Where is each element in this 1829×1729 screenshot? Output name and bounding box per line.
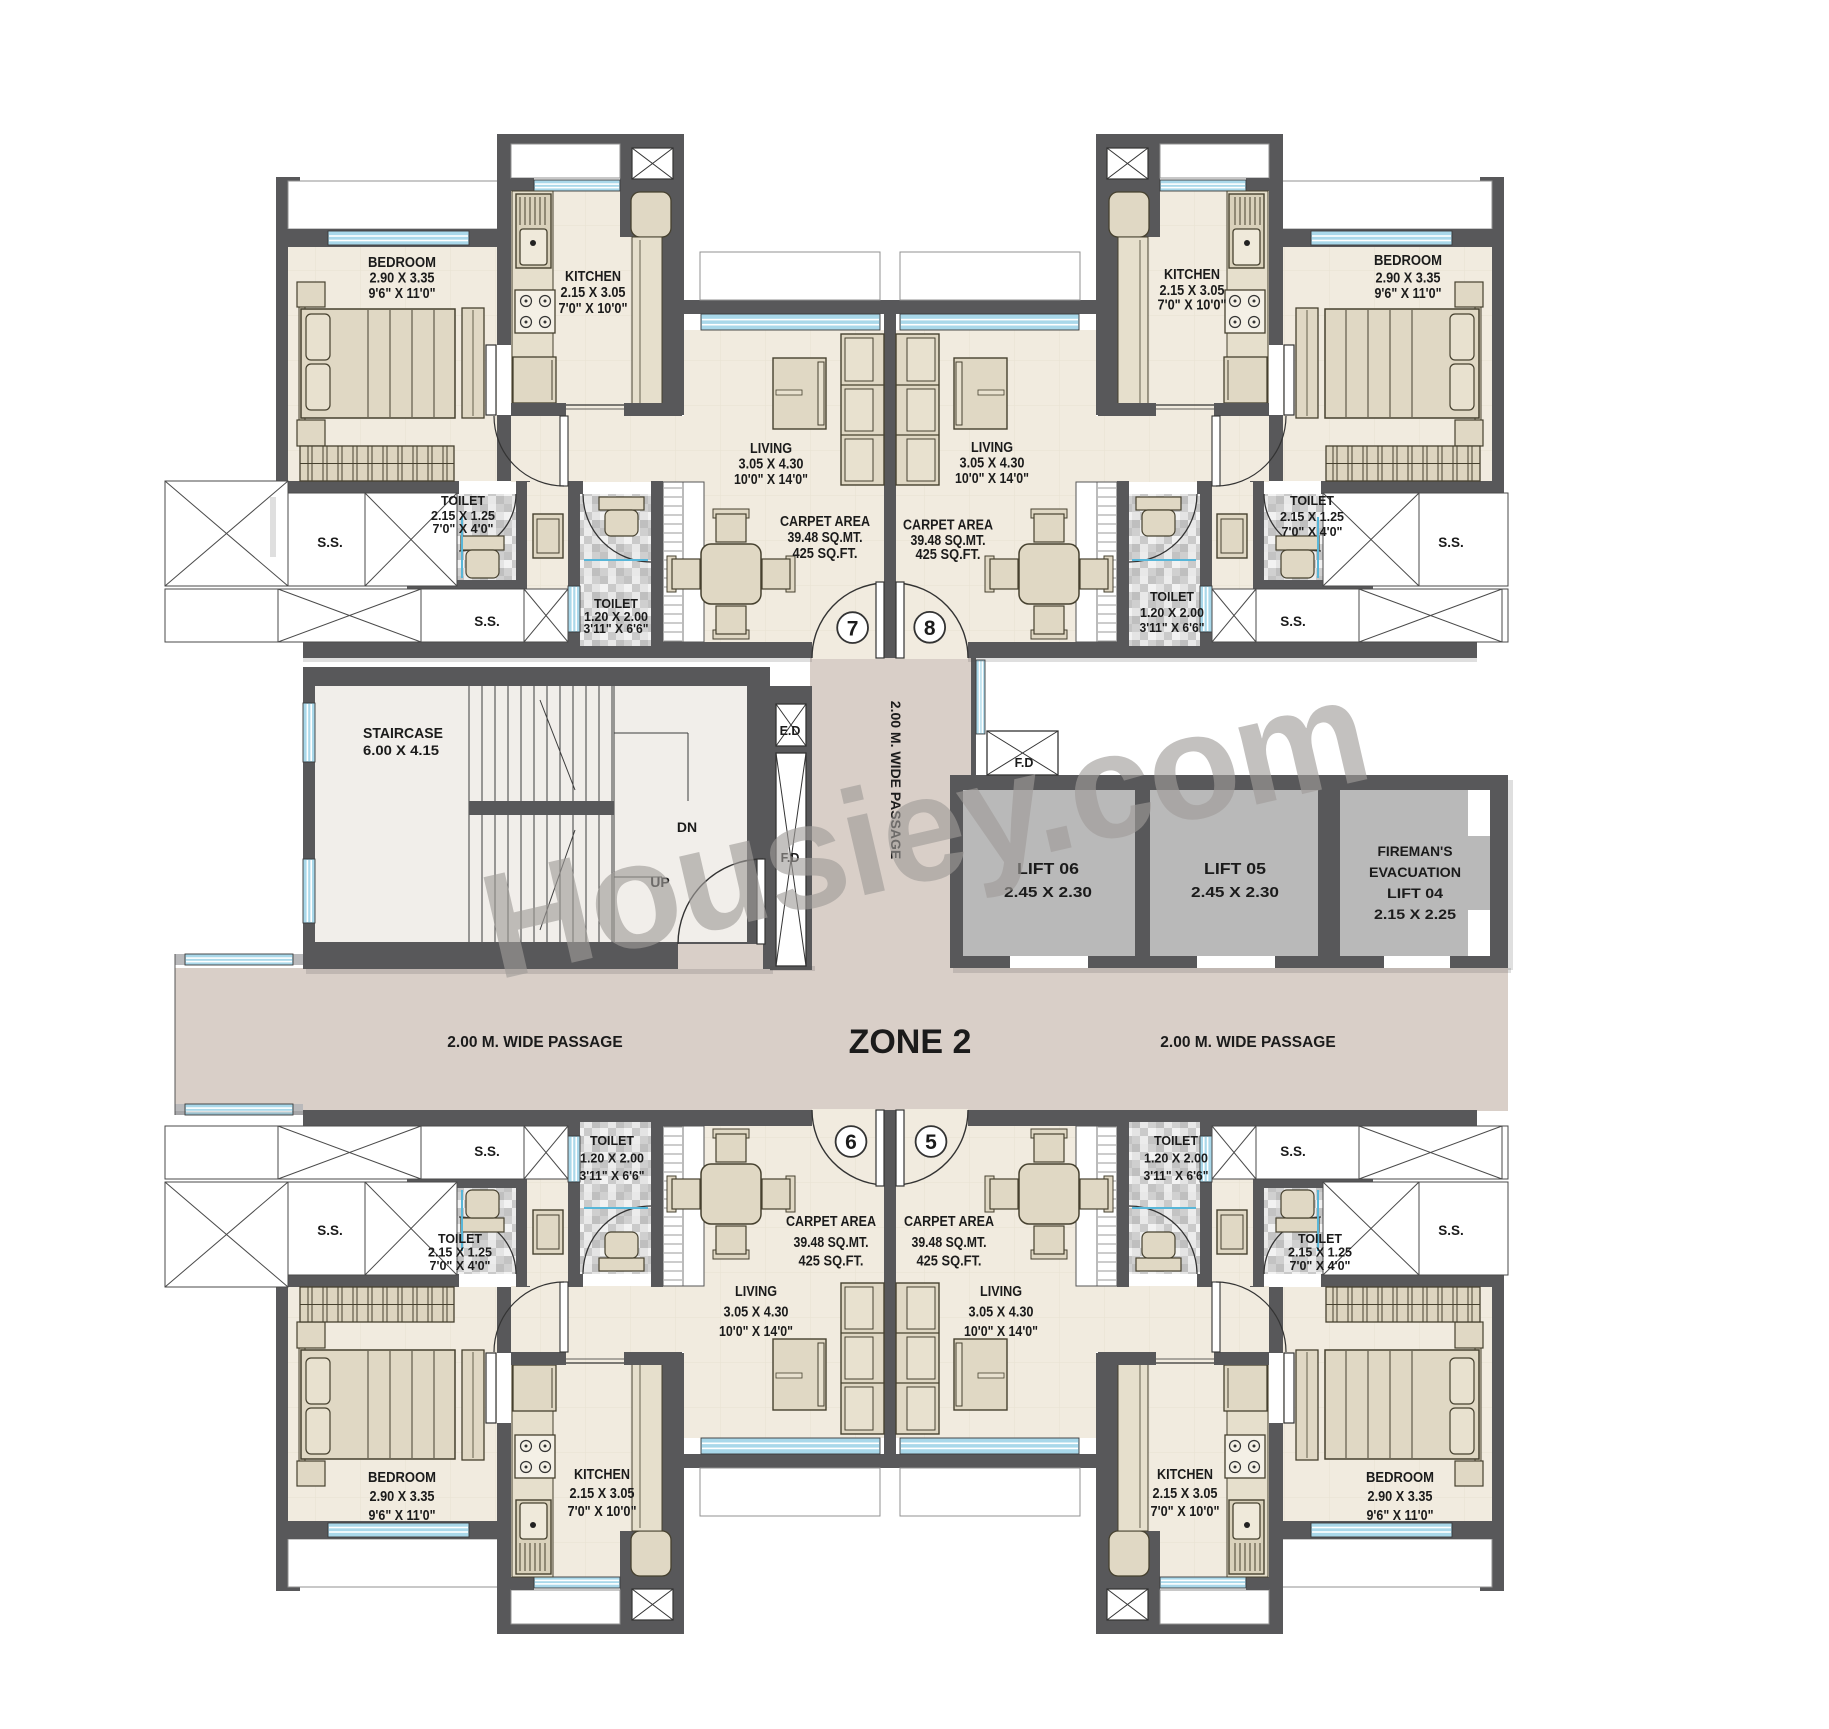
svg-text:2.15 X 3.05: 2.15 X 3.05 (1153, 1486, 1218, 1502)
svg-text:425 SQ.FT.: 425 SQ.FT. (799, 1254, 864, 1270)
svg-text:2.90 X 3.35: 2.90 X 3.35 (370, 1489, 435, 1505)
svg-text:2.45 X 2.30: 2.45 X 2.30 (1191, 884, 1279, 901)
svg-text:2.00 M. WIDE PASSAGE: 2.00 M. WIDE PASSAGE (1160, 1034, 1335, 1051)
svg-text:LIVING: LIVING (750, 441, 792, 457)
svg-text:425 SQ.FT.: 425 SQ.FT. (916, 547, 981, 563)
svg-text:10'0" X 14'0": 10'0" X 14'0" (734, 472, 808, 488)
svg-text:2.15 X 2.25: 2.15 X 2.25 (1374, 906, 1456, 922)
svg-text:6.00 X 4.15: 6.00 X 4.15 (363, 742, 439, 758)
svg-text:2.90 X 3.35: 2.90 X 3.35 (1368, 1489, 1433, 1505)
svg-text:3.05 X 4.30: 3.05 X 4.30 (739, 457, 804, 473)
svg-text:1.20 X 2.00: 1.20 X 2.00 (1140, 605, 1204, 620)
svg-text:E.D: E.D (780, 724, 801, 738)
svg-text:S.S.: S.S. (1438, 535, 1464, 550)
svg-text:2.00 M. WIDE PASSAGE: 2.00 M. WIDE PASSAGE (447, 1034, 622, 1051)
svg-text:FIREMAN'S: FIREMAN'S (1378, 843, 1453, 859)
svg-text:CARPET AREA: CARPET AREA (786, 1214, 876, 1230)
svg-text:7'0" X 4'0": 7'0" X 4'0" (1290, 1258, 1351, 1273)
svg-text:KITCHEN: KITCHEN (574, 1467, 630, 1483)
svg-text:3'11" X 6'6": 3'11" X 6'6" (584, 621, 649, 636)
svg-text:1.20 X 2.00: 1.20 X 2.00 (1144, 1151, 1208, 1166)
svg-text:39.48 SQ.MT.: 39.48 SQ.MT. (912, 1235, 987, 1251)
svg-text:2.15 X 1.25: 2.15 X 1.25 (1280, 509, 1344, 524)
svg-text:3'11" X 6'6": 3'11" X 6'6" (1140, 620, 1205, 635)
svg-text:KITCHEN: KITCHEN (1164, 267, 1220, 283)
svg-text:TOILET: TOILET (1150, 589, 1194, 604)
svg-text:2.90 X 3.35: 2.90 X 3.35 (1376, 271, 1441, 287)
svg-text:9'6" X 11'0": 9'6" X 11'0" (1375, 286, 1442, 302)
svg-text:7: 7 (847, 617, 859, 640)
svg-text:2.15 X 3.05: 2.15 X 3.05 (570, 1486, 635, 1502)
svg-text:7'0" X 4'0": 7'0" X 4'0" (433, 521, 494, 536)
svg-text:S.S.: S.S. (1280, 614, 1306, 629)
svg-text:10'0" X 14'0": 10'0" X 14'0" (955, 471, 1029, 487)
svg-text:S.S.: S.S. (317, 1223, 343, 1238)
svg-text:LIFT 05: LIFT 05 (1204, 861, 1266, 878)
svg-text:39.48 SQ.MT.: 39.48 SQ.MT. (788, 530, 863, 546)
svg-text:LIVING: LIVING (735, 1284, 777, 1300)
svg-text:10'0" X 14'0": 10'0" X 14'0" (719, 1324, 793, 1340)
svg-text:9'6" X 11'0": 9'6" X 11'0" (1367, 1508, 1434, 1524)
svg-text:3.05 X 4.30: 3.05 X 4.30 (969, 1305, 1034, 1321)
svg-text:S.S.: S.S. (1438, 1223, 1464, 1238)
svg-text:7'0" X 10'0": 7'0" X 10'0" (1158, 298, 1227, 314)
svg-text:S.S.: S.S. (474, 1144, 500, 1159)
svg-text:7'0" X 10'0": 7'0" X 10'0" (1151, 1504, 1220, 1520)
svg-text:2.15 X 3.05: 2.15 X 3.05 (561, 285, 626, 301)
svg-text:ZONE 2: ZONE 2 (849, 1023, 972, 1061)
svg-text:BEDROOM: BEDROOM (368, 1470, 436, 1486)
svg-text:10'0" X 14'0": 10'0" X 14'0" (964, 1324, 1038, 1340)
svg-text:3'11" X 6'6": 3'11" X 6'6" (580, 1168, 645, 1183)
svg-text:STAIRCASE: STAIRCASE (363, 725, 443, 742)
svg-text:KITCHEN: KITCHEN (565, 269, 621, 285)
svg-text:BEDROOM: BEDROOM (368, 255, 436, 271)
svg-text:CARPET AREA: CARPET AREA (903, 518, 993, 534)
svg-text:TOILET: TOILET (1154, 1133, 1198, 1148)
svg-text:CARPET AREA: CARPET AREA (780, 514, 870, 530)
svg-text:2.90 X 3.35: 2.90 X 3.35 (370, 271, 435, 287)
svg-text:7'0" X 10'0": 7'0" X 10'0" (559, 301, 628, 317)
svg-text:425 SQ.FT.: 425 SQ.FT. (917, 1254, 982, 1270)
svg-text:39.48 SQ.MT.: 39.48 SQ.MT. (794, 1235, 869, 1251)
svg-text:S.S.: S.S. (317, 535, 343, 550)
svg-text:TOILET: TOILET (441, 493, 485, 508)
svg-text:7'0" X 4'0": 7'0" X 4'0" (430, 1258, 491, 1273)
svg-text:LIFT 04: LIFT 04 (1387, 885, 1443, 901)
svg-text:7'0" X 4'0": 7'0" X 4'0" (1282, 524, 1343, 539)
svg-text:5: 5 (925, 1131, 937, 1154)
svg-text:1.20 X 2.00: 1.20 X 2.00 (580, 1151, 644, 1166)
svg-text:BEDROOM: BEDROOM (1366, 1470, 1434, 1486)
svg-text:3.05 X 4.30: 3.05 X 4.30 (724, 1305, 789, 1321)
svg-text:8: 8 (924, 617, 936, 640)
svg-text:9'6" X 11'0": 9'6" X 11'0" (369, 286, 436, 302)
svg-text:LIVING: LIVING (971, 440, 1013, 456)
svg-text:7'0" X 10'0": 7'0" X 10'0" (568, 1504, 637, 1520)
svg-text:9'6" X 11'0": 9'6" X 11'0" (369, 1508, 436, 1524)
svg-text:EVACUATION: EVACUATION (1369, 864, 1461, 880)
svg-text:S.S.: S.S. (1280, 1144, 1306, 1159)
svg-text:LIVING: LIVING (980, 1284, 1022, 1300)
svg-text:TOILET: TOILET (1290, 493, 1334, 508)
svg-text:S.S.: S.S. (474, 614, 500, 629)
svg-text:6: 6 (845, 1131, 857, 1154)
svg-text:3'11" X 6'6": 3'11" X 6'6" (1144, 1168, 1209, 1183)
svg-text:425 SQ.FT.: 425 SQ.FT. (793, 546, 858, 562)
svg-text:BEDROOM: BEDROOM (1374, 253, 1442, 269)
svg-text:CARPET AREA: CARPET AREA (904, 1214, 994, 1230)
svg-text:3.05 X 4.30: 3.05 X 4.30 (960, 456, 1025, 472)
svg-text:KITCHEN: KITCHEN (1157, 1467, 1213, 1483)
svg-text:TOILET: TOILET (590, 1133, 634, 1148)
